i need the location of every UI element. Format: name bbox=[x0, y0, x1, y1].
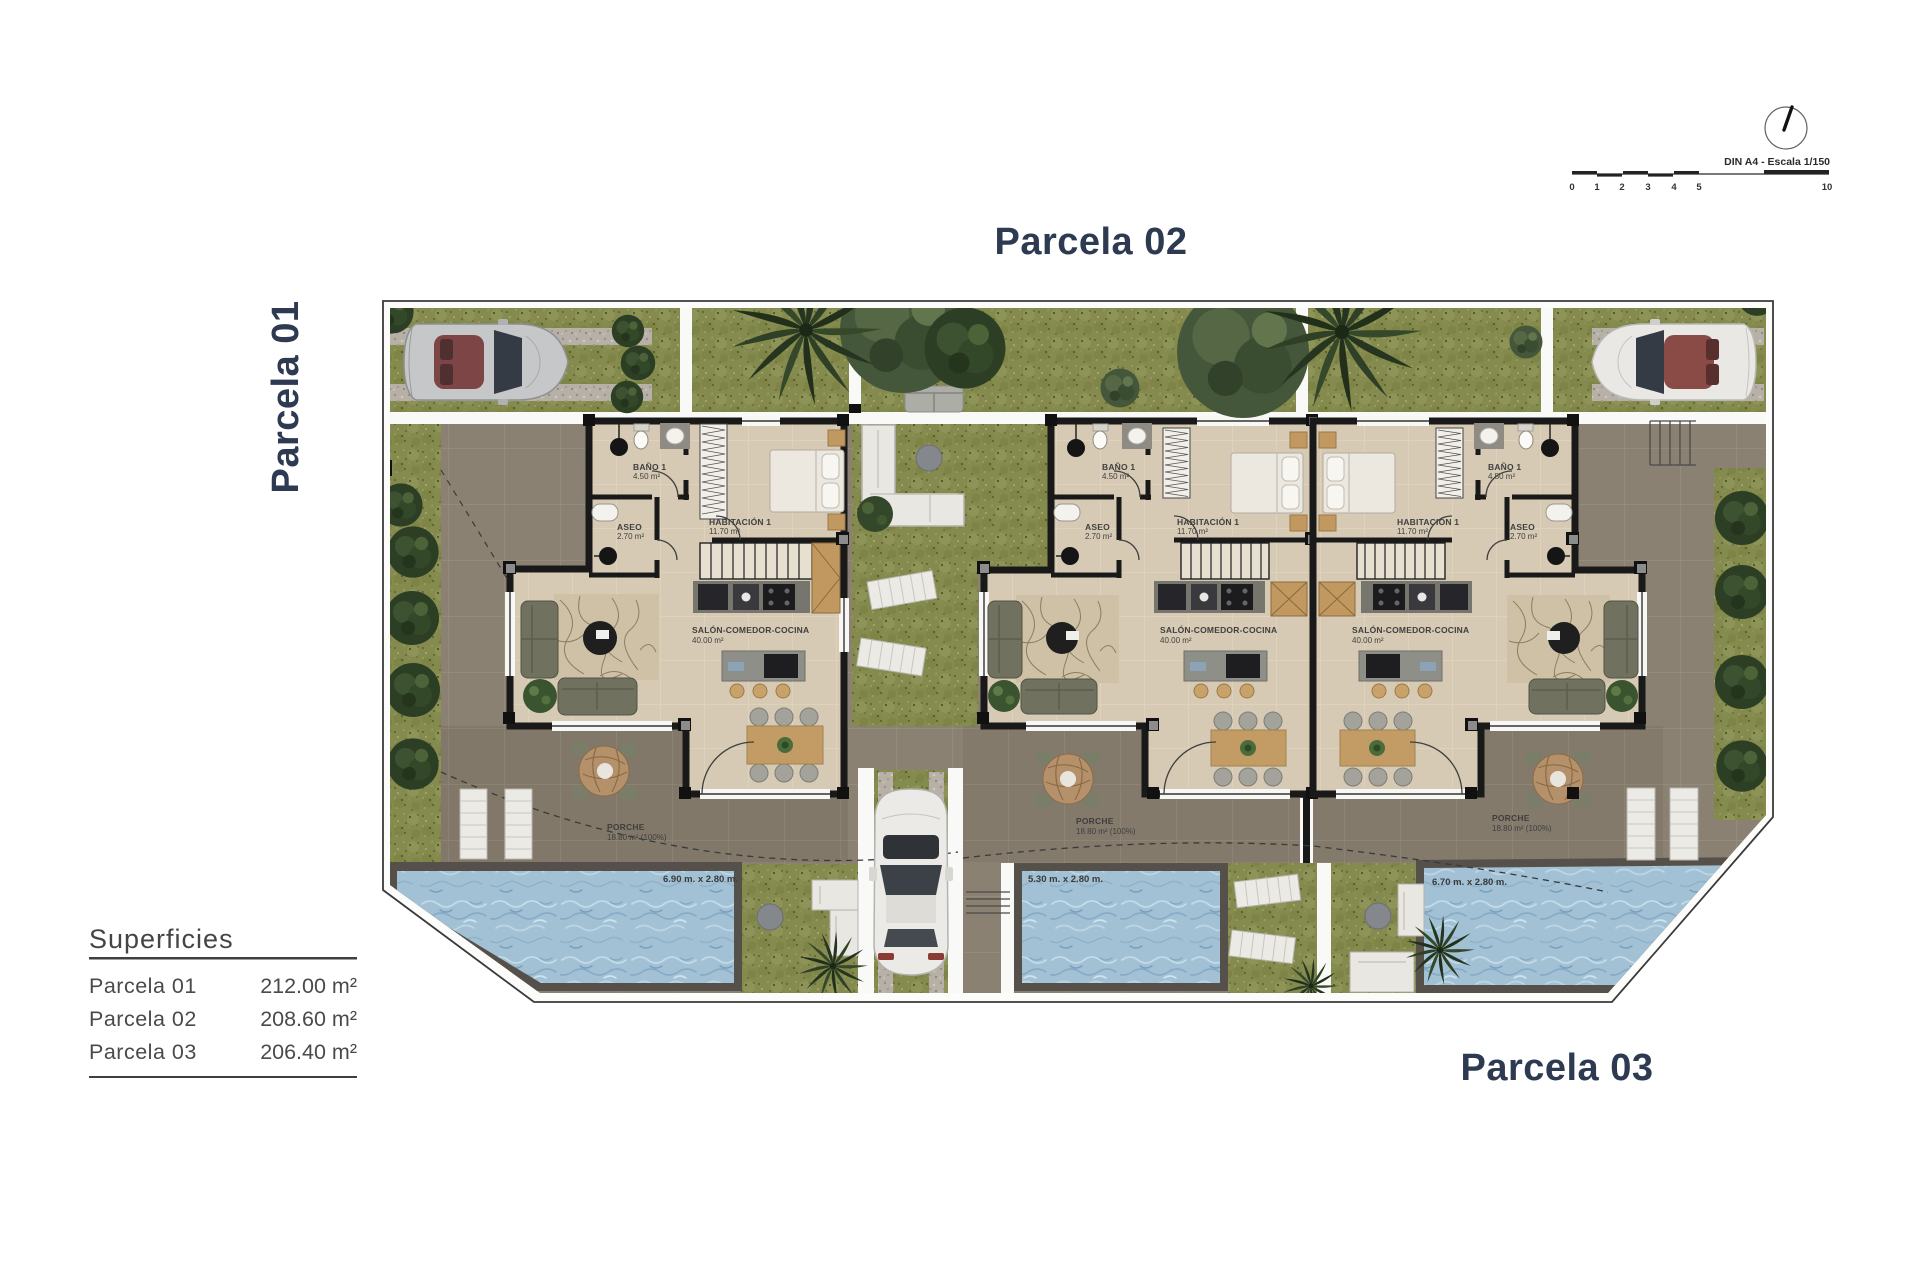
svg-text:BAÑO 1: BAÑO 1 bbox=[1102, 462, 1135, 472]
svg-text:PORCHE: PORCHE bbox=[1492, 813, 1530, 823]
svg-text:6.70 m. x 2.80 m.: 6.70 m. x 2.80 m. bbox=[1432, 877, 1507, 888]
svg-text:ASEO: ASEO bbox=[617, 522, 642, 532]
svg-text:SALÓN-COMEDOR-COCINA: SALÓN-COMEDOR-COCINA bbox=[1352, 624, 1469, 635]
svg-text:206.40 m²: 206.40 m² bbox=[260, 1040, 357, 1064]
svg-text:11.70 m²: 11.70 m² bbox=[1177, 527, 1208, 536]
svg-text:2.70 m²: 2.70 m² bbox=[1085, 532, 1112, 541]
svg-text:Parcela 03: Parcela 03 bbox=[89, 1040, 197, 1064]
svg-text:3: 3 bbox=[1645, 182, 1650, 193]
svg-text:11.70 m²: 11.70 m² bbox=[1397, 527, 1428, 536]
svg-text:Superficies: Superficies bbox=[89, 924, 234, 954]
svg-text:HABITACIÓN 1: HABITACIÓN 1 bbox=[1397, 516, 1459, 527]
svg-text:1: 1 bbox=[1594, 182, 1600, 193]
svg-text:212.00 m²: 212.00 m² bbox=[260, 974, 357, 998]
svg-text:HABITACIÓN 1: HABITACIÓN 1 bbox=[709, 516, 771, 527]
svg-text:ASEO: ASEO bbox=[1510, 522, 1535, 532]
svg-text:PORCHE: PORCHE bbox=[1076, 816, 1114, 826]
svg-text:11.70 m²: 11.70 m² bbox=[709, 527, 740, 536]
svg-text:40.00 m²: 40.00 m² bbox=[1352, 636, 1384, 645]
svg-text:Parcela 02: Parcela 02 bbox=[994, 221, 1187, 263]
svg-text:18.80 m² (100%): 18.80 m² (100%) bbox=[1492, 824, 1552, 833]
svg-text:10: 10 bbox=[1822, 182, 1833, 193]
svg-text:0: 0 bbox=[1569, 182, 1574, 193]
svg-text:BAÑO 1: BAÑO 1 bbox=[633, 462, 666, 472]
svg-text:ASEO: ASEO bbox=[1085, 522, 1110, 532]
svg-text:SALÓN-COMEDOR-COCINA: SALÓN-COMEDOR-COCINA bbox=[1160, 624, 1277, 635]
svg-text:208.60 m²: 208.60 m² bbox=[260, 1007, 357, 1031]
svg-text:5: 5 bbox=[1696, 182, 1702, 193]
svg-text:40.00 m²: 40.00 m² bbox=[692, 636, 724, 645]
svg-text:Parcela 01: Parcela 01 bbox=[89, 974, 197, 998]
svg-text:5.30 m. x 2.80 m.: 5.30 m. x 2.80 m. bbox=[1028, 874, 1103, 885]
svg-text:Parcela 03: Parcela 03 bbox=[1460, 1047, 1653, 1089]
svg-text:2.70 m²: 2.70 m² bbox=[1510, 532, 1537, 541]
svg-text:HABITACIÓN 1: HABITACIÓN 1 bbox=[1177, 516, 1239, 527]
svg-text:PORCHE: PORCHE bbox=[607, 822, 645, 832]
svg-text:4.50 m²: 4.50 m² bbox=[1102, 472, 1129, 481]
svg-text:4: 4 bbox=[1671, 182, 1677, 193]
svg-text:BAÑO 1: BAÑO 1 bbox=[1488, 462, 1521, 472]
svg-text:SALÓN-COMEDOR-COCINA: SALÓN-COMEDOR-COCINA bbox=[692, 624, 809, 635]
svg-text:DIN A4 - Escala 1/150: DIN A4 - Escala 1/150 bbox=[1724, 156, 1830, 168]
svg-text:6.90 m. x 2.80 m.: 6.90 m. x 2.80 m. bbox=[663, 874, 738, 885]
svg-text:2.70 m²: 2.70 m² bbox=[617, 532, 644, 541]
svg-text:2: 2 bbox=[1619, 182, 1624, 193]
svg-text:40.00 m²: 40.00 m² bbox=[1160, 636, 1192, 645]
svg-text:4.50 m²: 4.50 m² bbox=[1488, 472, 1515, 481]
svg-text:18.80 m² (100%): 18.80 m² (100%) bbox=[1076, 827, 1136, 836]
svg-text:Parcela 02: Parcela 02 bbox=[89, 1007, 197, 1031]
svg-text:18.80 m² (100%): 18.80 m² (100%) bbox=[607, 833, 667, 842]
svg-text:Parcela 01: Parcela 01 bbox=[265, 300, 307, 493]
svg-text:4.50 m²: 4.50 m² bbox=[633, 472, 660, 481]
